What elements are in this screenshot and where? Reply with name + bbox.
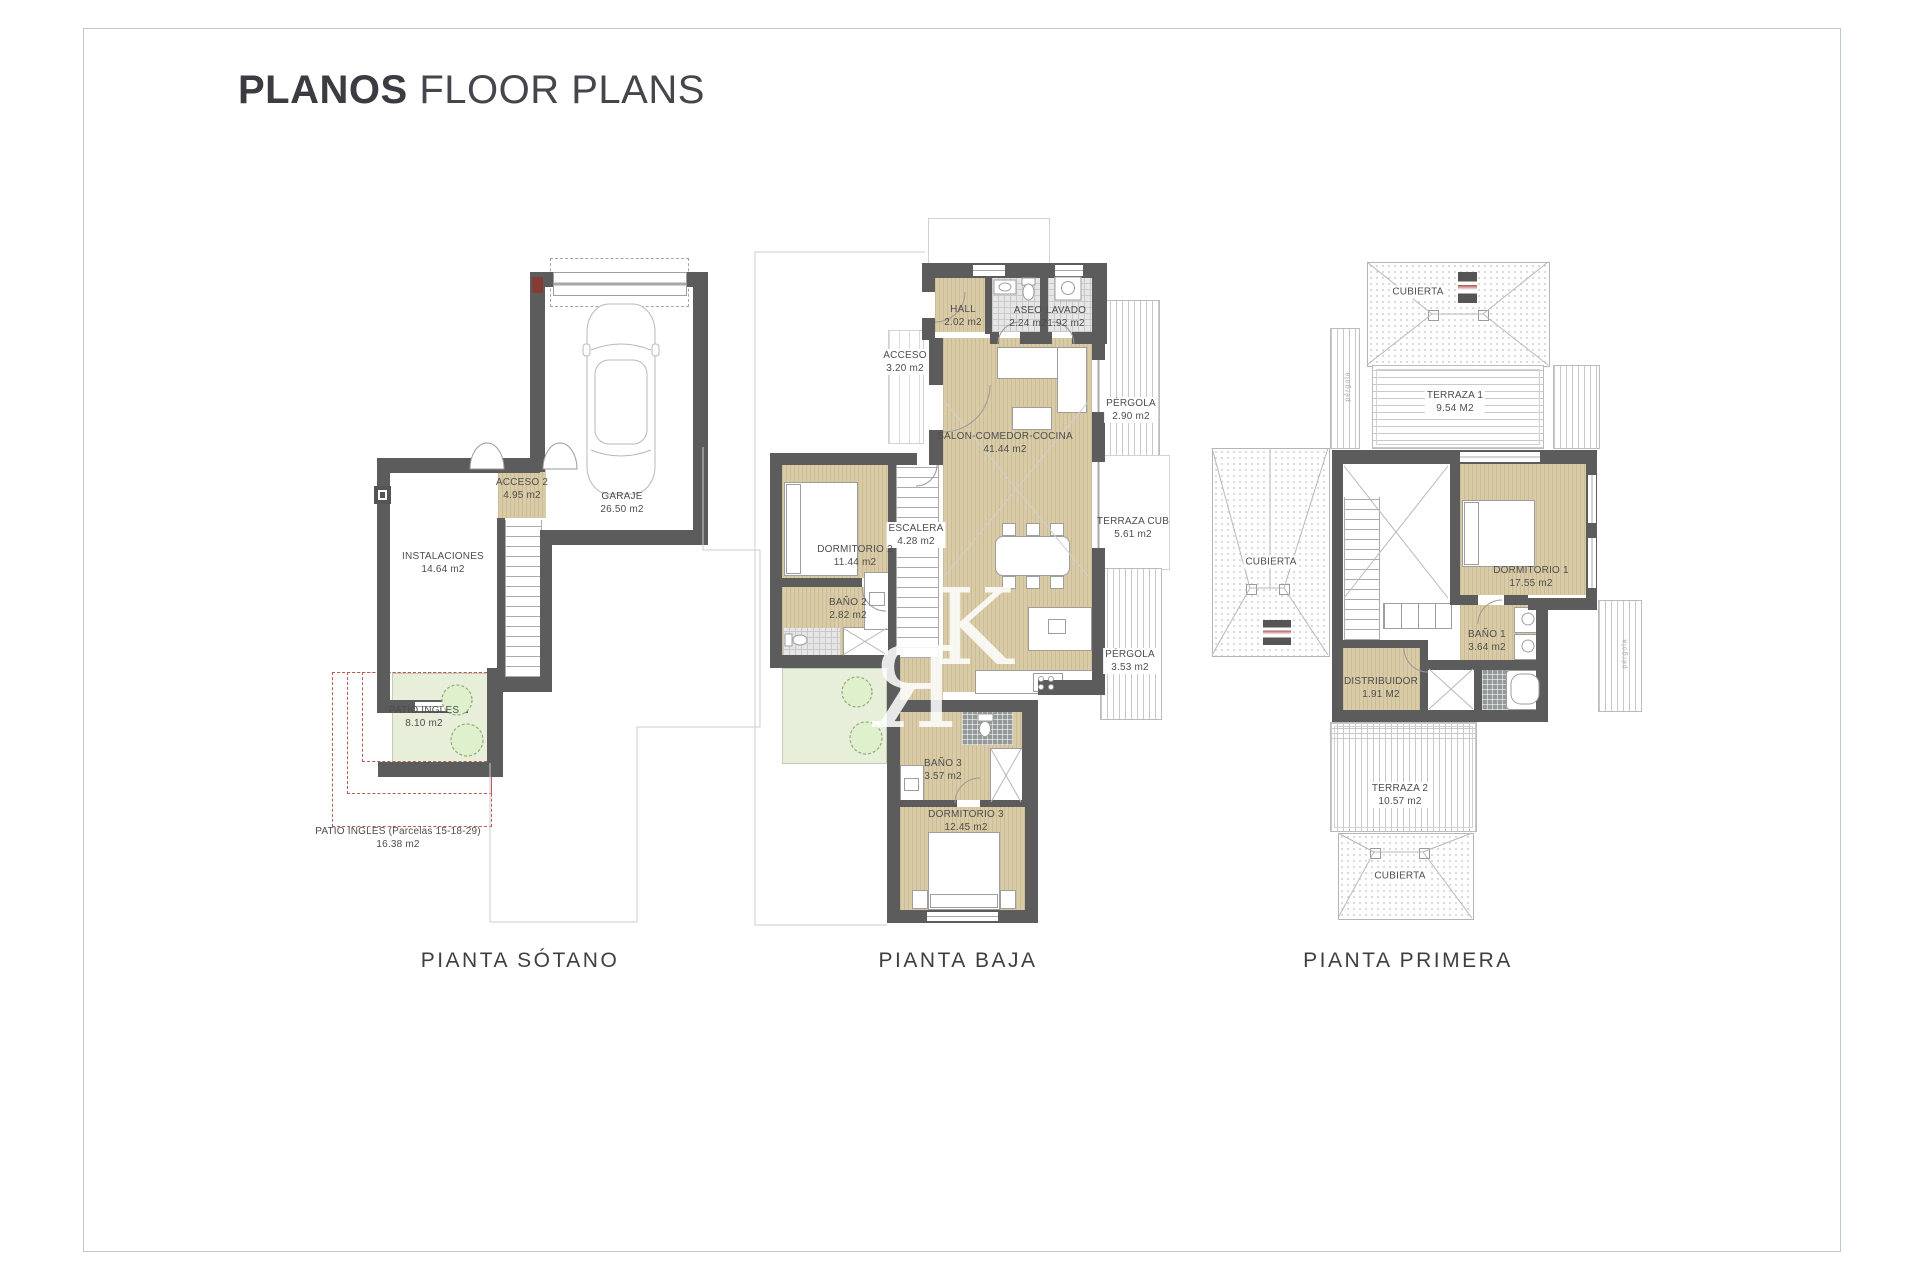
room-label-terraza2: TERRAZA 2 10.57 m2: [1370, 782, 1430, 808]
room-label-aseo: ASEO 2.24 m2: [1009, 304, 1047, 330]
floor-plans-sheet: PLANOS FLOOR PLANS: [0, 0, 1920, 1280]
room-label-terraza-cub: TERRAZA CUB 5.61 m2: [1097, 515, 1169, 541]
room-label-cubierta-left: CUBIERTA: [1243, 556, 1298, 569]
room-label-pergola1: PÉRGOLA 2.90 m2: [1104, 397, 1158, 423]
room-label-cubierta-top: CUBIERTA: [1390, 286, 1445, 299]
room-label-dormitorio1: DORMITORIO 1 17.55 m2: [1493, 564, 1569, 590]
room-label-distribuidor: DISTRIBUIDOR 1.91 M2: [1344, 675, 1418, 701]
watermark-letter-k: K: [934, 575, 1013, 681]
plan-title-sotano: PIANTA SÓTANO: [421, 949, 620, 973]
room-label-dormitorio2: DORMITORIO 2 11.44 m2: [817, 543, 893, 569]
parcel-outline: [490, 447, 760, 922]
room-label-terraza1: TERRAZA 1 9.54 M2: [1425, 389, 1485, 415]
plant-icon: [442, 677, 882, 756]
room-label-cubierta-bottom: CUBIERTA: [1372, 870, 1427, 883]
title-floor-plans: FLOOR PLANS: [419, 68, 705, 112]
car-icon: [583, 304, 659, 494]
door-arcs: [470, 443, 577, 469]
side-label-pergola: pérgola: [1622, 638, 1629, 668]
room-label-bano2: BAÑO 2 2.82 m2: [829, 596, 867, 622]
room-label-garaje: GARAJE 26.50 m2: [600, 490, 643, 516]
room-label-salon: SALON-COMEDOR-COCINA 41.44 m2: [937, 430, 1073, 456]
room-label-pergola2: PÉRGOLA 3.53 m2: [1103, 648, 1157, 674]
room-label-acceso2: ACCESO 2 4.95 m2: [496, 476, 548, 502]
room-label-patio-ingles: PATIO INGLES 8.10 m2: [389, 704, 459, 730]
double-height-marker: [945, 402, 1088, 576]
title-planos: PLANOS: [238, 68, 408, 112]
side-label-pergola: pérgola: [1345, 371, 1352, 401]
room-label-instalaciones: INSTALACIONES 14.64 m2: [402, 550, 484, 576]
plan-title-baja: PIANTA BAJA: [879, 949, 1038, 973]
room-label-hall: HALL 2.02 m2: [944, 303, 982, 329]
plan-title-primera: PIANTA PRIMERA: [1303, 949, 1513, 973]
page-title: PLANOS FLOOR PLANS: [238, 68, 705, 113]
room-label-patio-parcelas: PATIO INGLES (Parcelas 15-18-29) 16.38 m…: [315, 825, 481, 851]
room-label-bano1: BAÑO 1 3.64 m2: [1468, 628, 1506, 654]
room-label-bano3: BAÑO 3 3.57 m2: [924, 757, 962, 783]
room-label-lavado: LAVADO 1.92 m2: [1046, 304, 1086, 330]
room-label-dormitorio3: DORMITORIO 3 12.45 m2: [928, 808, 1004, 834]
room-label-acceso: ACCESO 3.20 m2: [881, 349, 928, 375]
roof-hip-lines: [1212, 262, 1548, 918]
room-label-escalera: ESCALERA 4.28 m2: [887, 522, 946, 548]
